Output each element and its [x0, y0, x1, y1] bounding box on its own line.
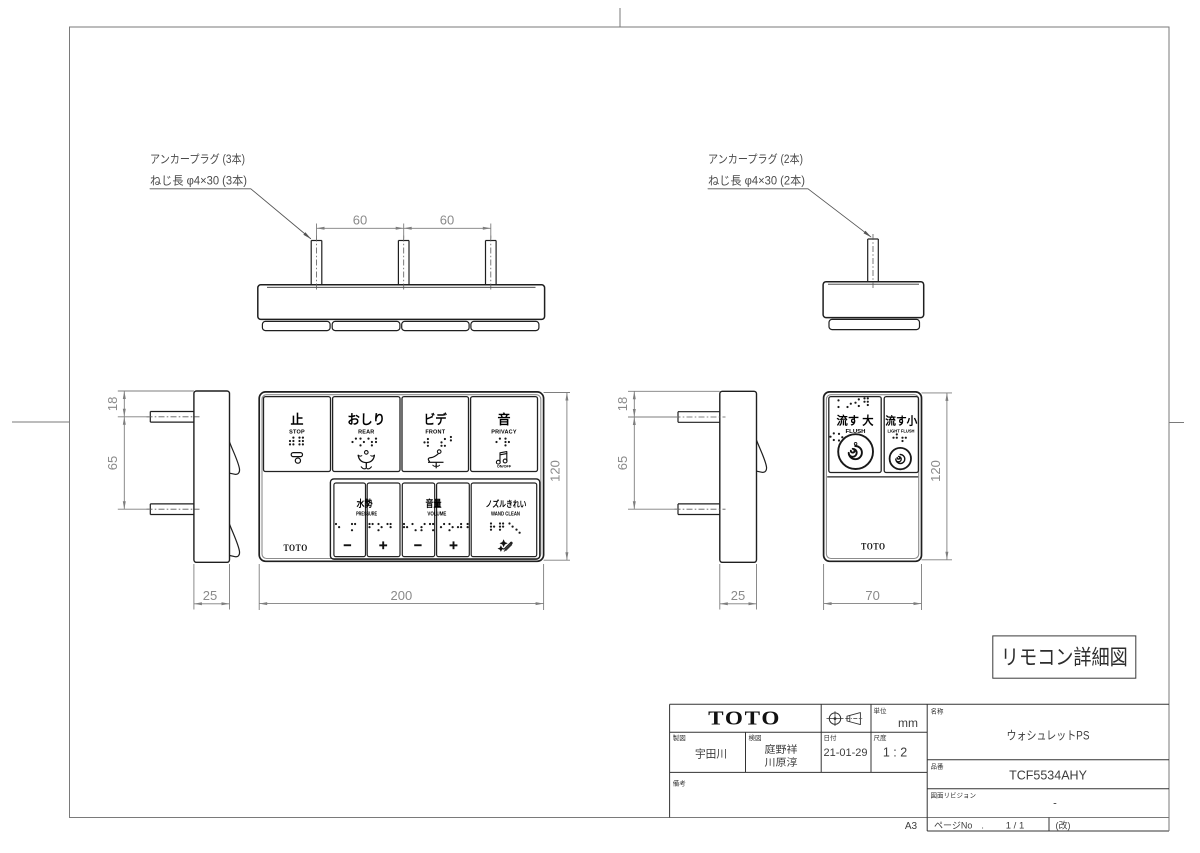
svg-text:おしり: おしり: [347, 412, 385, 427]
svg-text:65: 65: [105, 456, 120, 470]
svg-text:アンカープラグ (2本): アンカープラグ (2本): [708, 152, 803, 166]
svg-text:VOLUME: VOLUME: [427, 511, 447, 517]
svg-text:-: -: [1053, 798, 1057, 810]
svg-text:LIGHT FLUSH: LIGHT FLUSH: [888, 429, 916, 434]
svg-text:200: 200: [391, 588, 413, 603]
svg-text:図面リビジョン: 図面リビジョン: [931, 791, 977, 800]
svg-text:1 : 2: 1 : 2: [883, 746, 907, 760]
svg-text:60: 60: [440, 213, 454, 228]
svg-text:流す小: 流す小: [885, 414, 917, 428]
svg-text:止: 止: [290, 412, 303, 427]
svg-text:mm: mm: [898, 716, 918, 730]
svg-text:TOTO: TOTO: [708, 707, 781, 729]
svg-text:25: 25: [731, 588, 745, 603]
svg-text:21-01-29: 21-01-29: [823, 747, 867, 759]
svg-text:REAR: REAR: [358, 429, 374, 435]
svg-text:備考: 備考: [673, 778, 687, 787]
svg-text:ねじ長 φ4×30 (2本): ねじ長 φ4×30 (2本): [708, 174, 805, 188]
svg-text:18: 18: [105, 397, 120, 411]
svg-text:60: 60: [353, 213, 367, 228]
svg-text:(改): (改): [1056, 819, 1071, 830]
svg-text:川原淳: 川原淳: [765, 756, 798, 769]
svg-text:TCF5534AHY: TCF5534AHY: [1009, 769, 1087, 783]
svg-text:25: 25: [203, 588, 217, 603]
svg-text:庭野祥: 庭野祥: [765, 743, 798, 756]
svg-text:18: 18: [615, 397, 630, 411]
svg-text:120: 120: [548, 460, 563, 482]
svg-text:ON/OFF: ON/OFF: [497, 465, 512, 469]
svg-text:PRIVACY: PRIVACY: [491, 429, 517, 435]
svg-text:ウォシュレットPS: ウォシュレットPS: [1007, 729, 1090, 743]
svg-text:65: 65: [615, 456, 630, 470]
svg-text:品番: 品番: [931, 763, 945, 771]
svg-text:製図: 製図: [673, 733, 686, 742]
svg-text:1 / 1: 1 / 1: [1006, 820, 1025, 831]
svg-text:FRONT: FRONT: [425, 429, 445, 435]
svg-text:ページNo .: ページNo .: [934, 820, 984, 830]
svg-text:アンカープラグ (3本): アンカープラグ (3本): [150, 152, 245, 166]
svg-text:水勢: 水勢: [357, 498, 373, 510]
svg-text:音量: 音量: [426, 498, 442, 510]
svg-text:リモコン詳細図: リモコン詳細図: [1001, 647, 1128, 670]
svg-text:ねじ長 φ4×30 (3本): ねじ長 φ4×30 (3本): [150, 174, 247, 188]
svg-text:A3: A3: [905, 821, 918, 832]
svg-text:音: 音: [497, 412, 510, 427]
svg-text:STOP: STOP: [289, 429, 305, 435]
svg-text:120: 120: [928, 460, 943, 482]
svg-text:名称: 名称: [931, 706, 945, 715]
svg-text:検図: 検図: [749, 733, 762, 742]
svg-text:日付: 日付: [824, 733, 838, 742]
svg-text:70: 70: [865, 588, 879, 603]
svg-text:尺度: 尺度: [874, 733, 888, 742]
svg-text:TOTO: TOTO: [861, 541, 886, 551]
svg-text:TOTO: TOTO: [283, 543, 308, 553]
svg-text:ノズルきれい: ノズルきれい: [486, 499, 527, 509]
svg-text:WAND CLEAN: WAND CLEAN: [491, 511, 520, 517]
svg-text:宇田川: 宇田川: [695, 748, 727, 761]
svg-text:流す 大: 流す 大: [837, 414, 874, 428]
svg-text:ビデ: ビデ: [424, 412, 448, 427]
svg-text:PRESSURE: PRESSURE: [356, 511, 378, 517]
svg-text:単位: 単位: [874, 706, 888, 715]
